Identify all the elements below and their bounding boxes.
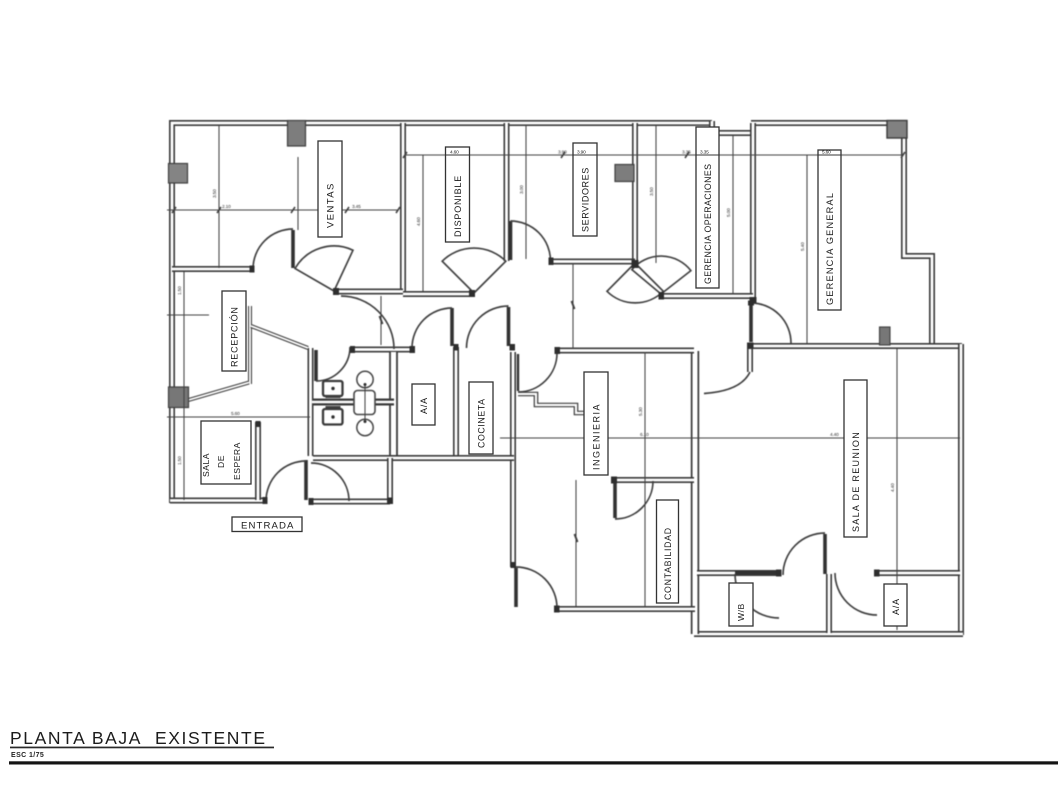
svg-text:4.40: 4.40: [830, 432, 839, 438]
svg-text:5.30: 5.30: [638, 407, 644, 416]
svg-text:SALA: SALA: [201, 453, 211, 477]
svg-text:5.60: 5.60: [231, 411, 240, 417]
svg-text:GERENCIA GENERAL: GERENCIA GENERAL: [825, 192, 835, 305]
svg-text:COCINETA: COCINETA: [477, 398, 487, 448]
svg-text:3.00: 3.00: [519, 185, 525, 194]
svg-text:DISPONIBLE: DISPONIBLE: [453, 175, 463, 237]
svg-text:A/A: A/A: [891, 598, 901, 615]
svg-text:3.50: 3.50: [212, 189, 218, 198]
svg-text:3.50: 3.50: [649, 187, 655, 196]
svg-text:5.40: 5.40: [800, 242, 806, 251]
svg-text:4.40: 4.40: [890, 483, 896, 492]
svg-text:W/B: W/B: [736, 603, 746, 621]
svg-text:3.45: 3.45: [352, 204, 361, 210]
svg-text:SERVIDORES: SERVIDORES: [581, 167, 591, 232]
svg-text:4.60: 4.60: [416, 217, 422, 226]
svg-text:3.35: 3.35: [700, 150, 709, 156]
svg-text:CONTABILIDAD: CONTABILIDAD: [663, 527, 673, 600]
svg-text:3.90: 3.90: [577, 150, 586, 156]
svg-text:5.60: 5.60: [822, 150, 831, 156]
svg-text:INGENIERIA: INGENIERIA: [592, 403, 602, 470]
svg-text:VENTAS: VENTAS: [326, 182, 337, 228]
svg-text:RECEPCIÓN: RECEPCIÓN: [230, 306, 240, 367]
svg-text:4.60: 4.60: [450, 150, 459, 156]
svg-text:SALA DE REUNION: SALA DE REUNION: [851, 431, 861, 532]
svg-text:A/A: A/A: [419, 397, 429, 414]
svg-text:1.50: 1.50: [177, 286, 183, 295]
svg-text:ESC 1/75: ESC 1/75: [11, 752, 44, 759]
svg-text:1.50: 1.50: [177, 456, 183, 465]
svg-text:ENTRADA: ENTRADA: [241, 521, 295, 532]
svg-text:PLANTA BAJA EXISTENTE: PLANTA BAJA EXISTENTE: [10, 728, 267, 748]
svg-text:ESPERA: ESPERA: [232, 442, 242, 480]
svg-text:DE: DE: [216, 455, 226, 468]
svg-text:2.10: 2.10: [222, 204, 231, 210]
svg-text:3.35: 3.35: [682, 150, 691, 156]
svg-text:3.90: 3.90: [558, 150, 567, 156]
svg-text:5.00: 5.00: [726, 208, 732, 217]
svg-text:GERENCIA OPERACIONES: GERENCIA OPERACIONES: [703, 164, 713, 284]
